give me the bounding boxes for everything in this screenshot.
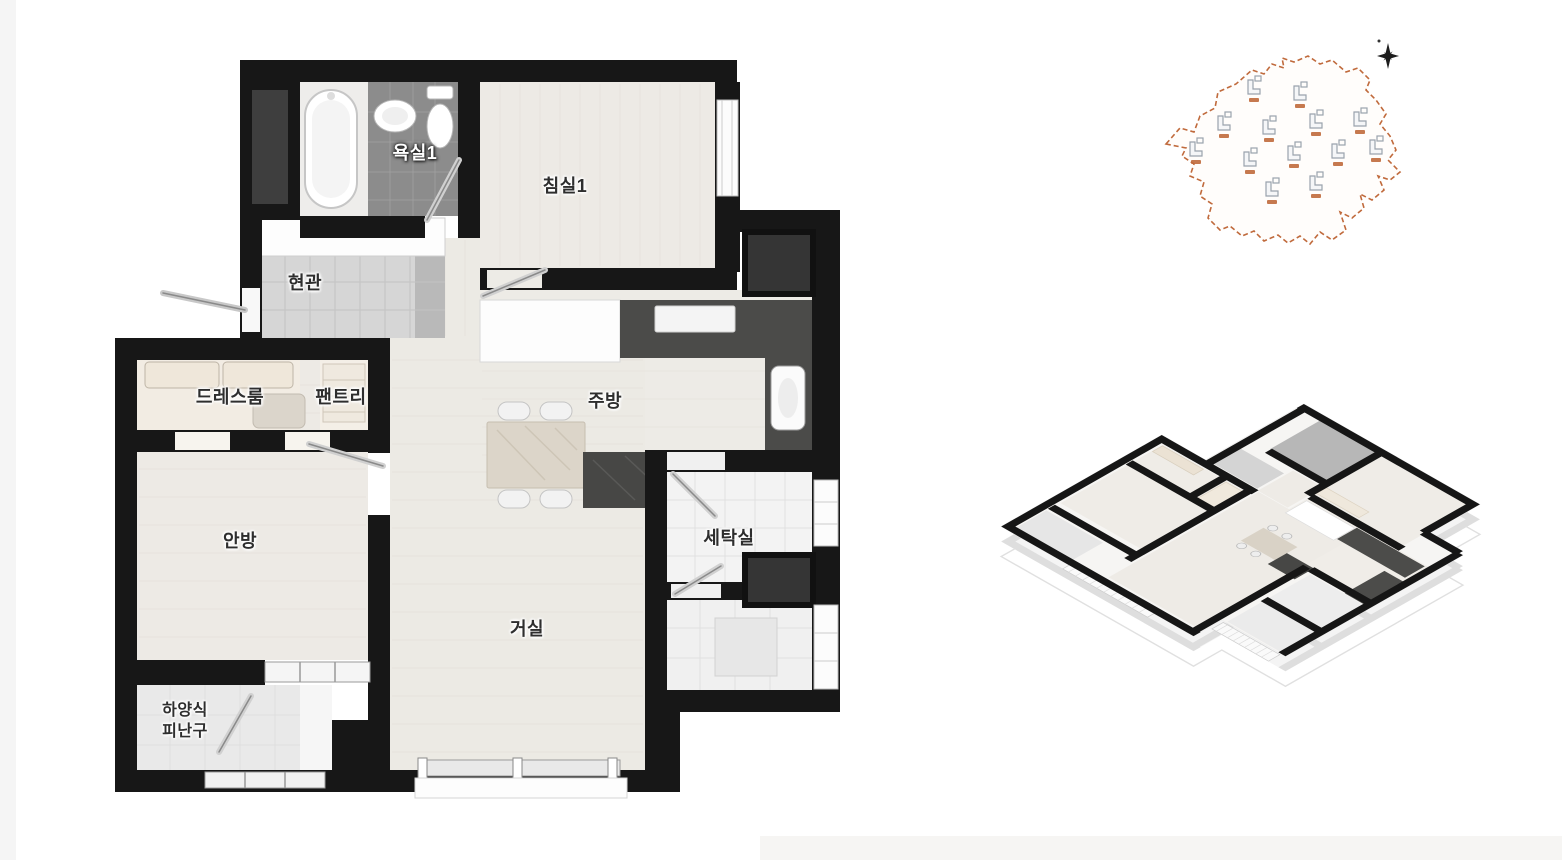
bathtub-faucet [327, 92, 335, 100]
wall-bath-right [458, 60, 480, 238]
toilet-tank [427, 86, 453, 99]
dining-chair-2 [540, 402, 572, 420]
site-map [1160, 28, 1460, 263]
label-entrance: 현관 [288, 269, 322, 295]
wall-left-upper [240, 200, 262, 360]
stove [655, 306, 735, 332]
dining-chair-1 [498, 402, 530, 420]
label-evacuation-hatch: 하양식 피난구 [162, 701, 208, 743]
wall-entry-bottom [115, 338, 390, 360]
dress-opening-1 [175, 432, 230, 450]
compass-star-icon [1377, 40, 1399, 70]
label-bedroom1: 침실1 [543, 172, 588, 198]
wall-left-outer [115, 338, 137, 792]
wall-master-bottom [115, 660, 265, 685]
site-boundary [1166, 56, 1400, 244]
evac-balcony-floor [300, 685, 332, 770]
wall-top [240, 60, 737, 82]
label-evac-line2: 피난구 [162, 722, 208, 743]
floor-plan-sheet: 욕실1 침실1 현관 드레스룸 팬트리 주방 세탁실 안방 거실 하양식 피난구 [0, 0, 1562, 860]
laundry-window [814, 480, 838, 546]
wall-kitchen-right [812, 210, 840, 472]
label-pantry: 팬트리 [315, 383, 366, 409]
entrance-step [415, 256, 445, 338]
shaft-topleft [252, 90, 288, 204]
living-window-jamb-2 [513, 758, 522, 778]
label-bathroom1: 욕실1 [393, 139, 438, 165]
laundry-door-opening [667, 452, 725, 470]
bedroom1-window [717, 100, 738, 196]
floor-plan-2d: 욕실1 침실1 현관 드레스룸 팬트리 주방 세탁실 안방 거실 하양식 피난구 [115, 60, 840, 800]
label-laundry: 세탁실 [703, 524, 754, 550]
evac-window [205, 772, 325, 788]
utility-window [814, 605, 838, 689]
label-dressroom: 드레스룸 [196, 383, 264, 409]
kitchen-cabinet-white [480, 300, 620, 362]
bathroom-sink-basin [382, 107, 408, 125]
kitchen-sink-basin [778, 378, 798, 418]
living-window-jamb-3 [608, 758, 617, 778]
label-living-room: 거실 [510, 615, 544, 641]
wall-living-right [645, 450, 667, 712]
floor-plan-2d-drawing [115, 60, 840, 800]
dining-chair-4 [540, 490, 572, 508]
shaft-right-upper [745, 232, 813, 294]
front-door-edge [163, 293, 245, 310]
label-evac-line1: 하양식 [162, 701, 208, 722]
site-map-drawing [1160, 28, 1460, 263]
shaft-right-lower [745, 555, 813, 605]
bedroom1-floor [480, 82, 717, 268]
bathtub-inner [312, 100, 350, 198]
isometric-3d-view [950, 295, 1562, 860]
label-kitchen: 주방 [588, 387, 622, 413]
wall-bath-bottom [300, 216, 425, 238]
iso-top-layer [995, 379, 1516, 676]
left-edge-strip [0, 0, 16, 860]
living-balcony-sill [415, 778, 627, 798]
iso-drawing [950, 295, 1562, 860]
living-window-jamb-1 [418, 758, 427, 778]
master-window [265, 662, 370, 682]
wall-pantry-right [368, 338, 390, 453]
dining-chair-3 [498, 490, 530, 508]
wall-balcony-corner [332, 720, 390, 792]
dining-table [487, 422, 585, 488]
utility-appliance [715, 618, 777, 676]
label-master-bedroom: 안방 [223, 527, 257, 553]
